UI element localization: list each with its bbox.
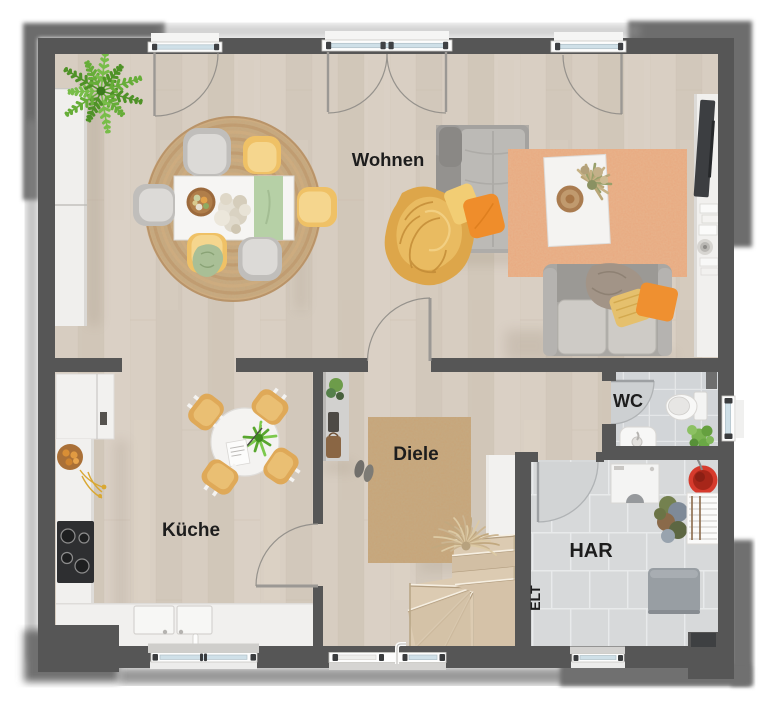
- svg-text:ELT: ELT: [527, 585, 543, 611]
- svg-text:Diele: Diele: [393, 444, 438, 465]
- svg-text:WC: WC: [613, 391, 643, 411]
- svg-text:HAR: HAR: [569, 540, 613, 562]
- svg-text:Wohnen: Wohnen: [352, 149, 425, 170]
- svg-text:Küche: Küche: [162, 520, 220, 541]
